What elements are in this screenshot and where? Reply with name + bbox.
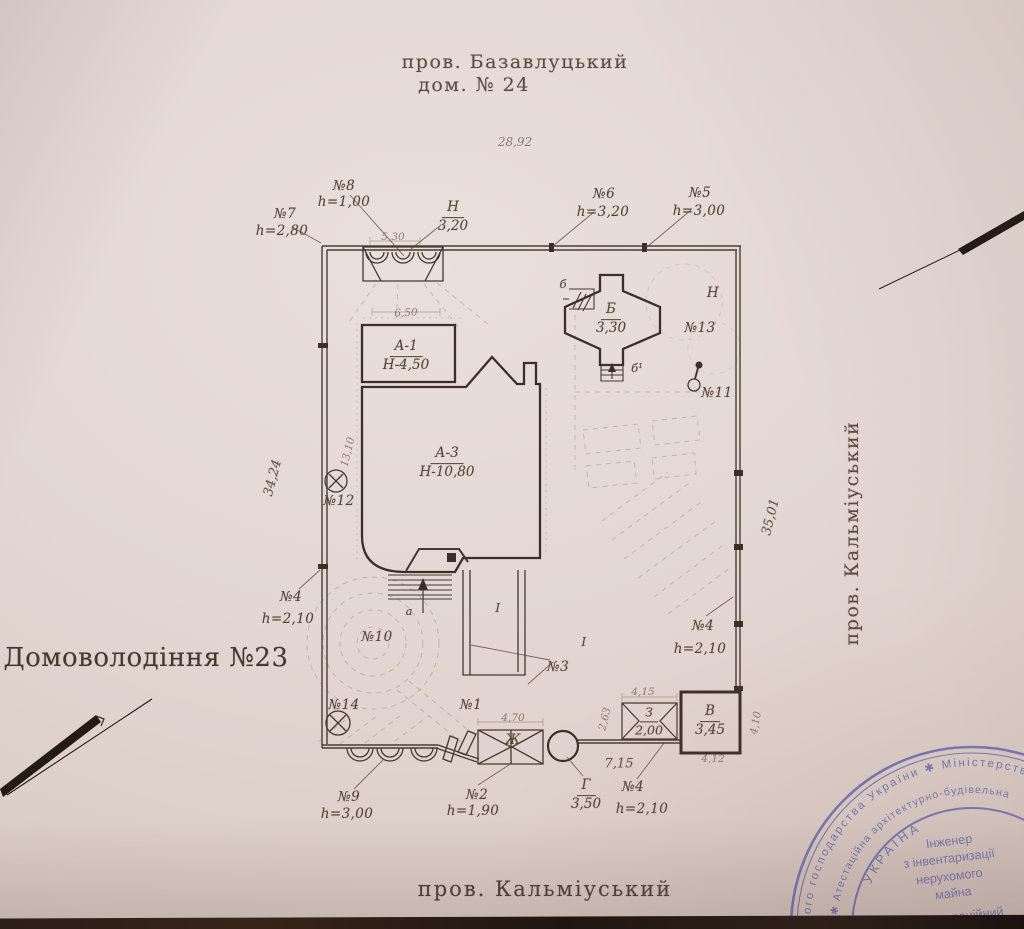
- gate-leaves: [443, 731, 476, 762]
- marker-n8-number: №8: [333, 178, 355, 194]
- marker-n6-height: h=3,20: [577, 204, 629, 220]
- gate-canopy-letter: Н: [442, 199, 464, 218]
- marker-n12-number: №12: [323, 493, 354, 509]
- building-g-outline: [548, 731, 578, 761]
- terrace-outline: [463, 570, 525, 675]
- building-b-letter: Б: [601, 301, 621, 320]
- pen-marks: [0, 211, 1024, 797]
- marker-n6-number: №6: [593, 186, 615, 202]
- building-z-letter: З: [640, 704, 658, 722]
- building-v-letter: В: [700, 703, 720, 722]
- stamp-line-4: майна: [934, 884, 972, 902]
- marker-n4-bottom-number: №4: [622, 779, 644, 795]
- dim-v-width: 4,12: [701, 753, 724, 765]
- street-name-right: пров. Кальміуський: [841, 421, 863, 646]
- entry-b1-label: б¹: [631, 361, 643, 375]
- building-a3-letter: А-3: [430, 445, 463, 464]
- stamp-line-3: нерухомого: [915, 866, 983, 888]
- marker-n5-number: №5: [689, 185, 711, 201]
- street-name-top: пров. Базавлуцький: [402, 51, 629, 73]
- entry-b-label: б: [559, 277, 566, 291]
- marker-n7-number: №7: [274, 206, 296, 222]
- corner-h-mark: Н: [707, 285, 719, 301]
- marker-n9-number: №9: [338, 789, 360, 805]
- dim-z-width: 4,15: [631, 686, 654, 698]
- marker-n13-number: №13: [684, 320, 715, 336]
- building-zh-letter: Ж: [505, 732, 521, 748]
- boundary-fence: [322, 246, 741, 762]
- yard-letter: І: [581, 635, 586, 649]
- building-b-label: Б 3,30: [596, 301, 626, 337]
- round-stamp: ного господарства України ✱ Міністерство…: [791, 747, 1024, 929]
- building-v-height: 3,45: [695, 722, 725, 739]
- marker-n4-bottom-height: h=2,10: [616, 801, 668, 817]
- marker-n14-number: №14: [328, 697, 359, 713]
- marker-n4-left-number: №4: [280, 589, 302, 605]
- building-a1-letter: А-1: [389, 338, 422, 357]
- entry-a-label: а: [406, 604, 413, 618]
- dim-a1-width: 6,50: [394, 306, 418, 319]
- marker-n5-height: h=3,00: [673, 203, 725, 219]
- building-z-height: 2,00: [635, 722, 663, 738]
- marker-n4-right-height: h=2,10: [674, 641, 726, 657]
- neighbor-estate-label: Домоволодіння №23: [4, 643, 289, 673]
- marker-n7-height: h=2,80: [256, 223, 308, 239]
- marker-n3-number: №3: [547, 659, 569, 675]
- stamp-line-2: з інвентаризації: [903, 846, 996, 871]
- building-a1-label: А-1 Н-4,50: [383, 338, 429, 374]
- dim-frontage-top: 28,92: [498, 135, 532, 149]
- building-a3-label: А-3 Н-10,80: [420, 445, 475, 481]
- building-v-label: В 3,45: [695, 703, 725, 739]
- building-g-letter: Г: [577, 777, 596, 796]
- stamp-center-text: Інженер з інвентаризації нерухомого майн…: [901, 829, 1007, 929]
- marker-n11-number: №11: [701, 385, 732, 401]
- dim-bottom-fence: 7,15: [605, 757, 634, 772]
- dim-gate-width: 5,30: [381, 231, 404, 243]
- gate-canopy-height: 3,20: [438, 218, 468, 235]
- marker-n4-right-number: №4: [692, 618, 714, 634]
- marker-n1-number: №1: [460, 697, 482, 713]
- building-g-label: Г 3,50: [571, 777, 601, 813]
- house-number: дом. № 24: [418, 74, 530, 96]
- fence-posts: [318, 243, 743, 691]
- marker-n9-height: h=3,00: [321, 806, 373, 822]
- marker-n2-number: №2: [466, 787, 488, 803]
- gate-canopy-label: Н 3,20: [438, 199, 468, 235]
- terrace-letter: І: [495, 601, 500, 615]
- building-z-label: З 2,00: [635, 704, 663, 737]
- street-name-bottom: пров. Кальміуський: [418, 877, 673, 901]
- building-b-height: 3,30: [596, 320, 626, 337]
- hydrant-symbol-n11: [688, 379, 700, 391]
- building-g-height: 3,50: [571, 796, 601, 813]
- marker-n2-height: h=1,90: [447, 803, 499, 819]
- building-a1-height: Н-4,50: [383, 357, 429, 374]
- marker-n8-height: h=1,00: [318, 194, 370, 210]
- building-a3-height: Н-10,80: [420, 464, 475, 481]
- fence-scallops: [347, 748, 437, 761]
- marker-n4-left-height: h=2,10: [262, 611, 314, 627]
- marker-n10-number: №10: [361, 629, 392, 645]
- stamp-line-1: Інженер: [925, 832, 973, 852]
- dim-zh-width: 4,70: [501, 712, 524, 724]
